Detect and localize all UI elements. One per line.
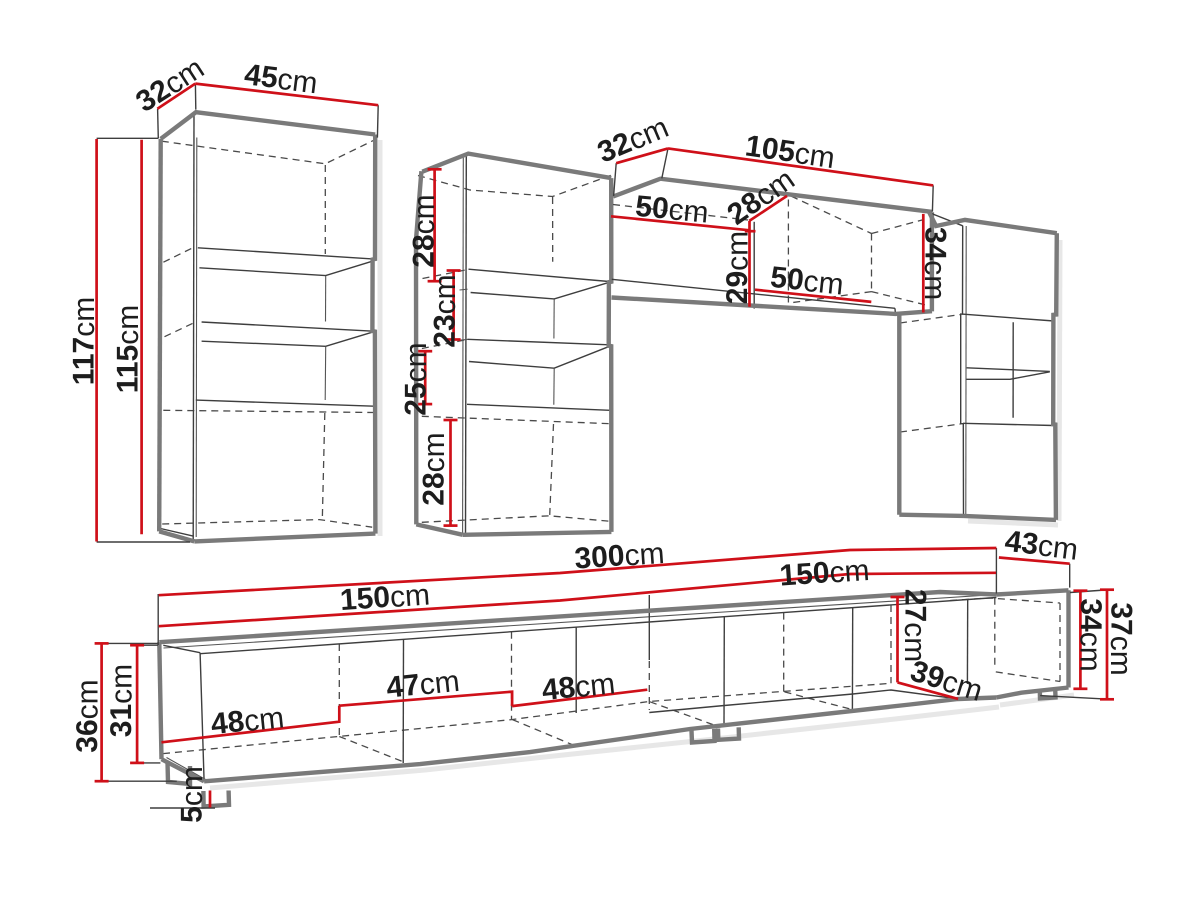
svg-text:28cm: 28cm — [408, 194, 441, 267]
svg-text:150cm: 150cm — [778, 553, 870, 592]
svg-text:28cm: 28cm — [418, 432, 451, 505]
svg-text:300cm: 300cm — [573, 536, 665, 575]
svg-text:115cm: 115cm — [112, 305, 145, 393]
svg-text:37cm: 37cm — [1105, 602, 1138, 675]
svg-text:29cm: 29cm — [721, 231, 754, 304]
svg-text:25cm: 25cm — [400, 342, 433, 415]
svg-text:34cm: 34cm — [1074, 598, 1107, 671]
svg-text:117cm: 117cm — [68, 297, 101, 385]
svg-text:5cm: 5cm — [176, 766, 209, 823]
svg-text:36cm: 36cm — [71, 679, 104, 752]
svg-text:34cm: 34cm — [919, 227, 952, 300]
svg-text:31cm: 31cm — [105, 664, 138, 737]
svg-text:23cm: 23cm — [429, 274, 462, 347]
svg-text:27cm: 27cm — [899, 589, 932, 662]
svg-text:50cm: 50cm — [634, 190, 710, 229]
svg-text:150cm: 150cm — [339, 578, 431, 617]
